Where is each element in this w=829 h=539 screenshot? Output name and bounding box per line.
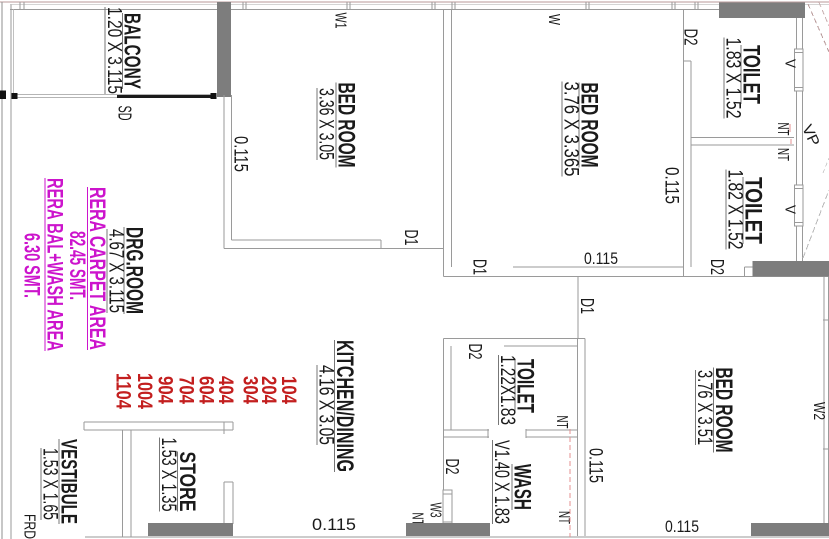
svg-text:D2: D2 (442, 459, 462, 475)
svg-text:D1: D1 (470, 259, 490, 275)
svg-text:V: V (782, 205, 799, 214)
svg-text:0.115: 0.115 (312, 515, 356, 534)
svg-text:1104: 1104 (112, 373, 135, 409)
svg-text:1.53 X 1.35: 1.53 X 1.35 (157, 438, 180, 512)
svg-text:NT: NT (555, 511, 572, 524)
svg-text:0.115: 0.115 (230, 136, 251, 172)
svg-text:1.83 X 1.52: 1.83 X 1.52 (722, 38, 745, 119)
svg-text:D2: D2 (681, 29, 701, 46)
svg-text:4.16 X 3.05: 4.16 X 3.05 (315, 365, 338, 445)
svg-text:SD: SD (115, 106, 135, 121)
svg-text:NT: NT (553, 416, 570, 429)
svg-text:3.36 X 3.05: 3.36 X 3.05 (315, 88, 338, 160)
svg-text:W: W (545, 14, 562, 26)
svg-text:3.76 X 3.365: 3.76 X 3.365 (560, 82, 583, 177)
svg-text:D1: D1 (401, 230, 421, 246)
svg-text:W2: W2 (810, 402, 827, 420)
svg-text:FRD: FRD (21, 514, 38, 539)
svg-text:1.20 X 3.115: 1.20 X 3.115 (103, 7, 125, 94)
svg-text:1.82 X 1.52: 1.82 X 1.52 (724, 170, 747, 250)
svg-text:0.115: 0.115 (584, 249, 618, 268)
svg-text:82.45 SMT.: 82.45 SMT. (65, 231, 90, 300)
svg-text:3.76 X 3.51: 3.76 X 3.51 (693, 370, 716, 445)
svg-text:RERA BAL+WASH AREA: RERA BAL+WASH AREA (43, 178, 68, 351)
svg-text:D2: D2 (707, 259, 727, 275)
svg-text:W3: W3 (427, 503, 444, 518)
svg-text:W1: W1 (332, 13, 349, 29)
svg-text:6.30 SMT.: 6.30 SMT. (20, 233, 45, 298)
svg-text:0.115: 0.115 (665, 517, 699, 536)
svg-text:NT: NT (774, 148, 791, 161)
svg-text:304: 304 (239, 376, 262, 404)
svg-text:V1.40 X 1.83: V1.40 X 1.83 (490, 440, 513, 524)
svg-text:1.22X1.83: 1.22X1.83 (496, 355, 519, 425)
svg-text:D1: D1 (577, 298, 597, 314)
svg-text:704: 704 (175, 376, 198, 404)
svg-text:1.53 X 1.65: 1.53 X 1.65 (39, 448, 62, 520)
svg-text:V: V (782, 59, 799, 68)
svg-text:NT: NT (774, 123, 791, 136)
svg-text:0.115: 0.115 (585, 448, 606, 483)
svg-text:D2: D2 (465, 344, 485, 360)
svg-text:1004: 1004 (133, 373, 156, 409)
svg-text:0.115: 0.115 (661, 167, 682, 204)
